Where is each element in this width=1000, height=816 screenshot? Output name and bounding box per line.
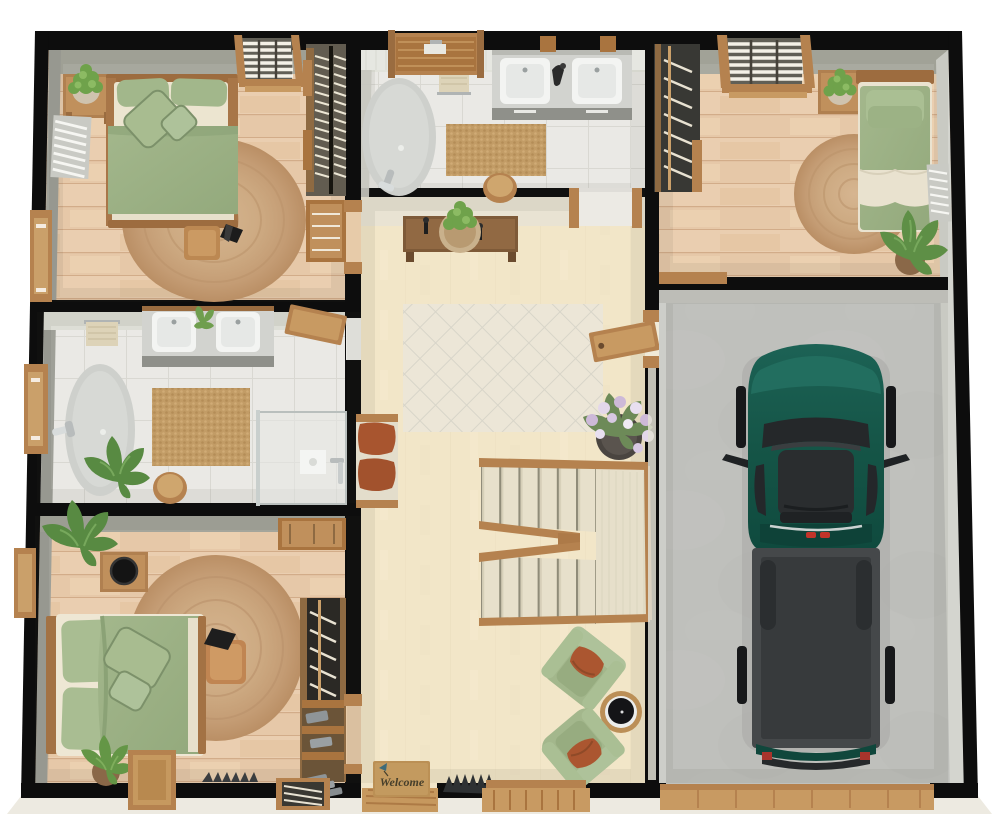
svg-text:Welcome: Welcome (380, 775, 425, 789)
